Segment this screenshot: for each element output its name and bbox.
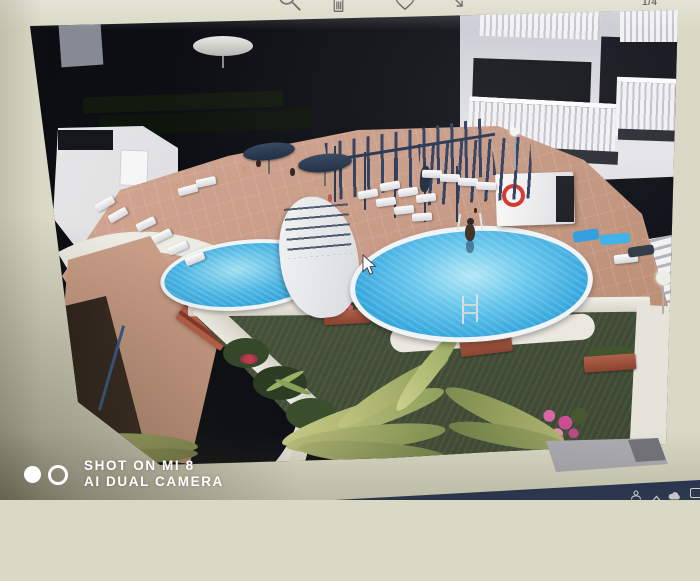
photo-counter: 1/4 [642, 0, 657, 8]
watermark-text: SHOT ON MI 8 AI DUAL CAMERA [84, 458, 224, 490]
watermark-line2: AI DUAL CAMERA [84, 474, 224, 489]
zoom-search-icon[interactable] [277, 0, 303, 13]
pool-photo [28, 8, 690, 470]
cloud-icon[interactable] [668, 487, 681, 505]
filled-circle-icon [24, 466, 41, 483]
chevron-up-icon[interactable] [652, 489, 661, 507]
photographed-screen: { "toolbar": { "icons": [ {"name": "zoom… [0, 0, 700, 500]
screen-glare [28, 8, 690, 470]
share-edit-icon[interactable] [451, 0, 465, 10]
favorite-heart-icon[interactable] [394, 0, 416, 11]
people-icon[interactable] [630, 487, 642, 505]
battery-icon[interactable] [690, 488, 700, 498]
mouse-cursor [362, 254, 377, 281]
outline-circle-icon [48, 465, 68, 485]
watermark-line1: SHOT ON MI 8 [84, 458, 195, 473]
delete-trash-icon[interactable] [330, 0, 347, 14]
